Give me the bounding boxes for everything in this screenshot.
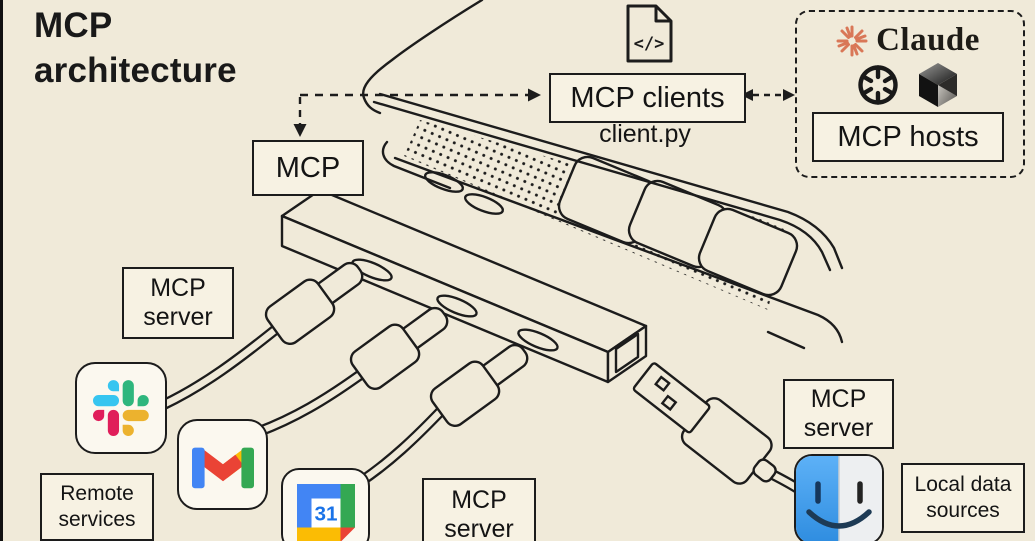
node-local-data-sources: Local data sources — [901, 463, 1025, 533]
server-label-line2: server — [804, 414, 873, 444]
calendar-day-number: 31 — [314, 502, 337, 525]
node-mcp-server-remote: MCP server — [122, 267, 234, 339]
cursor-cube-icon — [915, 62, 961, 108]
mcp-architecture-diagram: </> MCP architecture MCP MCP clients cli… — [0, 0, 1035, 541]
code-file-icon: </> — [628, 6, 671, 61]
slack-icon — [75, 362, 167, 454]
page-title: MCP architecture — [34, 4, 274, 94]
usb-c-plug-2 — [347, 296, 457, 393]
node-remote-services: Remote services — [40, 473, 154, 541]
local-sources-line2: sources — [915, 498, 1012, 524]
server-label-line1: MCP — [143, 274, 212, 304]
client-file-label: client.py — [565, 120, 725, 149]
cable-calendar — [360, 412, 440, 482]
gmail-icon — [177, 419, 268, 510]
node-mcp-clients: MCP clients — [549, 73, 746, 123]
cable-gmail — [258, 375, 360, 432]
google-calendar-icon: 31 — [281, 468, 370, 541]
host-logos — [795, 62, 1021, 108]
claude-wordmark: Claude — [876, 22, 980, 59]
local-sources-line1: Local data — [915, 472, 1012, 498]
slack-logo — [93, 380, 149, 436]
finder-icon — [794, 454, 884, 541]
server-label-line1: MCP — [444, 486, 513, 516]
keyboard-keys — [555, 153, 802, 300]
node-mcp: MCP — [252, 140, 364, 196]
chassis-bottom-right — [768, 332, 804, 348]
cable-slack — [163, 330, 275, 405]
finder-face — [796, 456, 882, 541]
node-mcp-server-middle: MCP server — [422, 478, 536, 541]
server-label-line2: server — [444, 515, 513, 541]
claude-starburst-icon — [836, 25, 868, 57]
gmail-logo — [192, 441, 254, 489]
remote-services-line1: Remote — [58, 481, 135, 507]
remote-services-line2: services — [58, 507, 135, 533]
code-glyph: </> — [634, 34, 665, 54]
claude-brand: Claude — [795, 22, 1021, 59]
server-label-line2: server — [143, 303, 212, 333]
node-mcp-hosts-label: MCP hosts — [837, 121, 978, 154]
node-mcp-clients-label: MCP clients — [570, 82, 724, 115]
usb-a-plug — [626, 354, 790, 499]
google-calendar-logo: 31 — [297, 484, 355, 541]
server-label-line1: MCP — [804, 385, 873, 415]
node-mcp-server-local: MCP server — [783, 379, 894, 449]
node-mcp-hosts: MCP hosts — [812, 112, 1004, 162]
usb-c-plug-1 — [262, 251, 372, 348]
usb-c-plug-3 — [427, 333, 537, 430]
node-mcp-label: MCP — [276, 152, 340, 185]
openai-icon — [855, 62, 901, 108]
frame-edge — [0, 0, 3, 541]
